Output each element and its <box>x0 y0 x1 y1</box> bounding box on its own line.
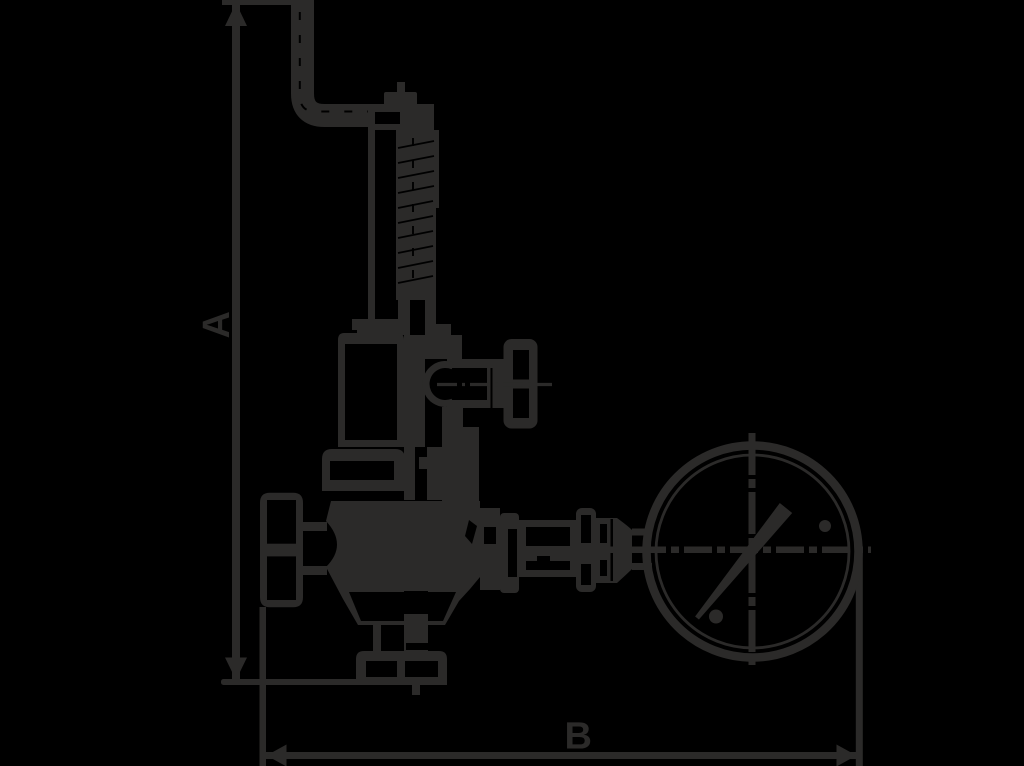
svg-text:B: B <box>565 716 592 758</box>
svg-text:A: A <box>196 311 238 338</box>
